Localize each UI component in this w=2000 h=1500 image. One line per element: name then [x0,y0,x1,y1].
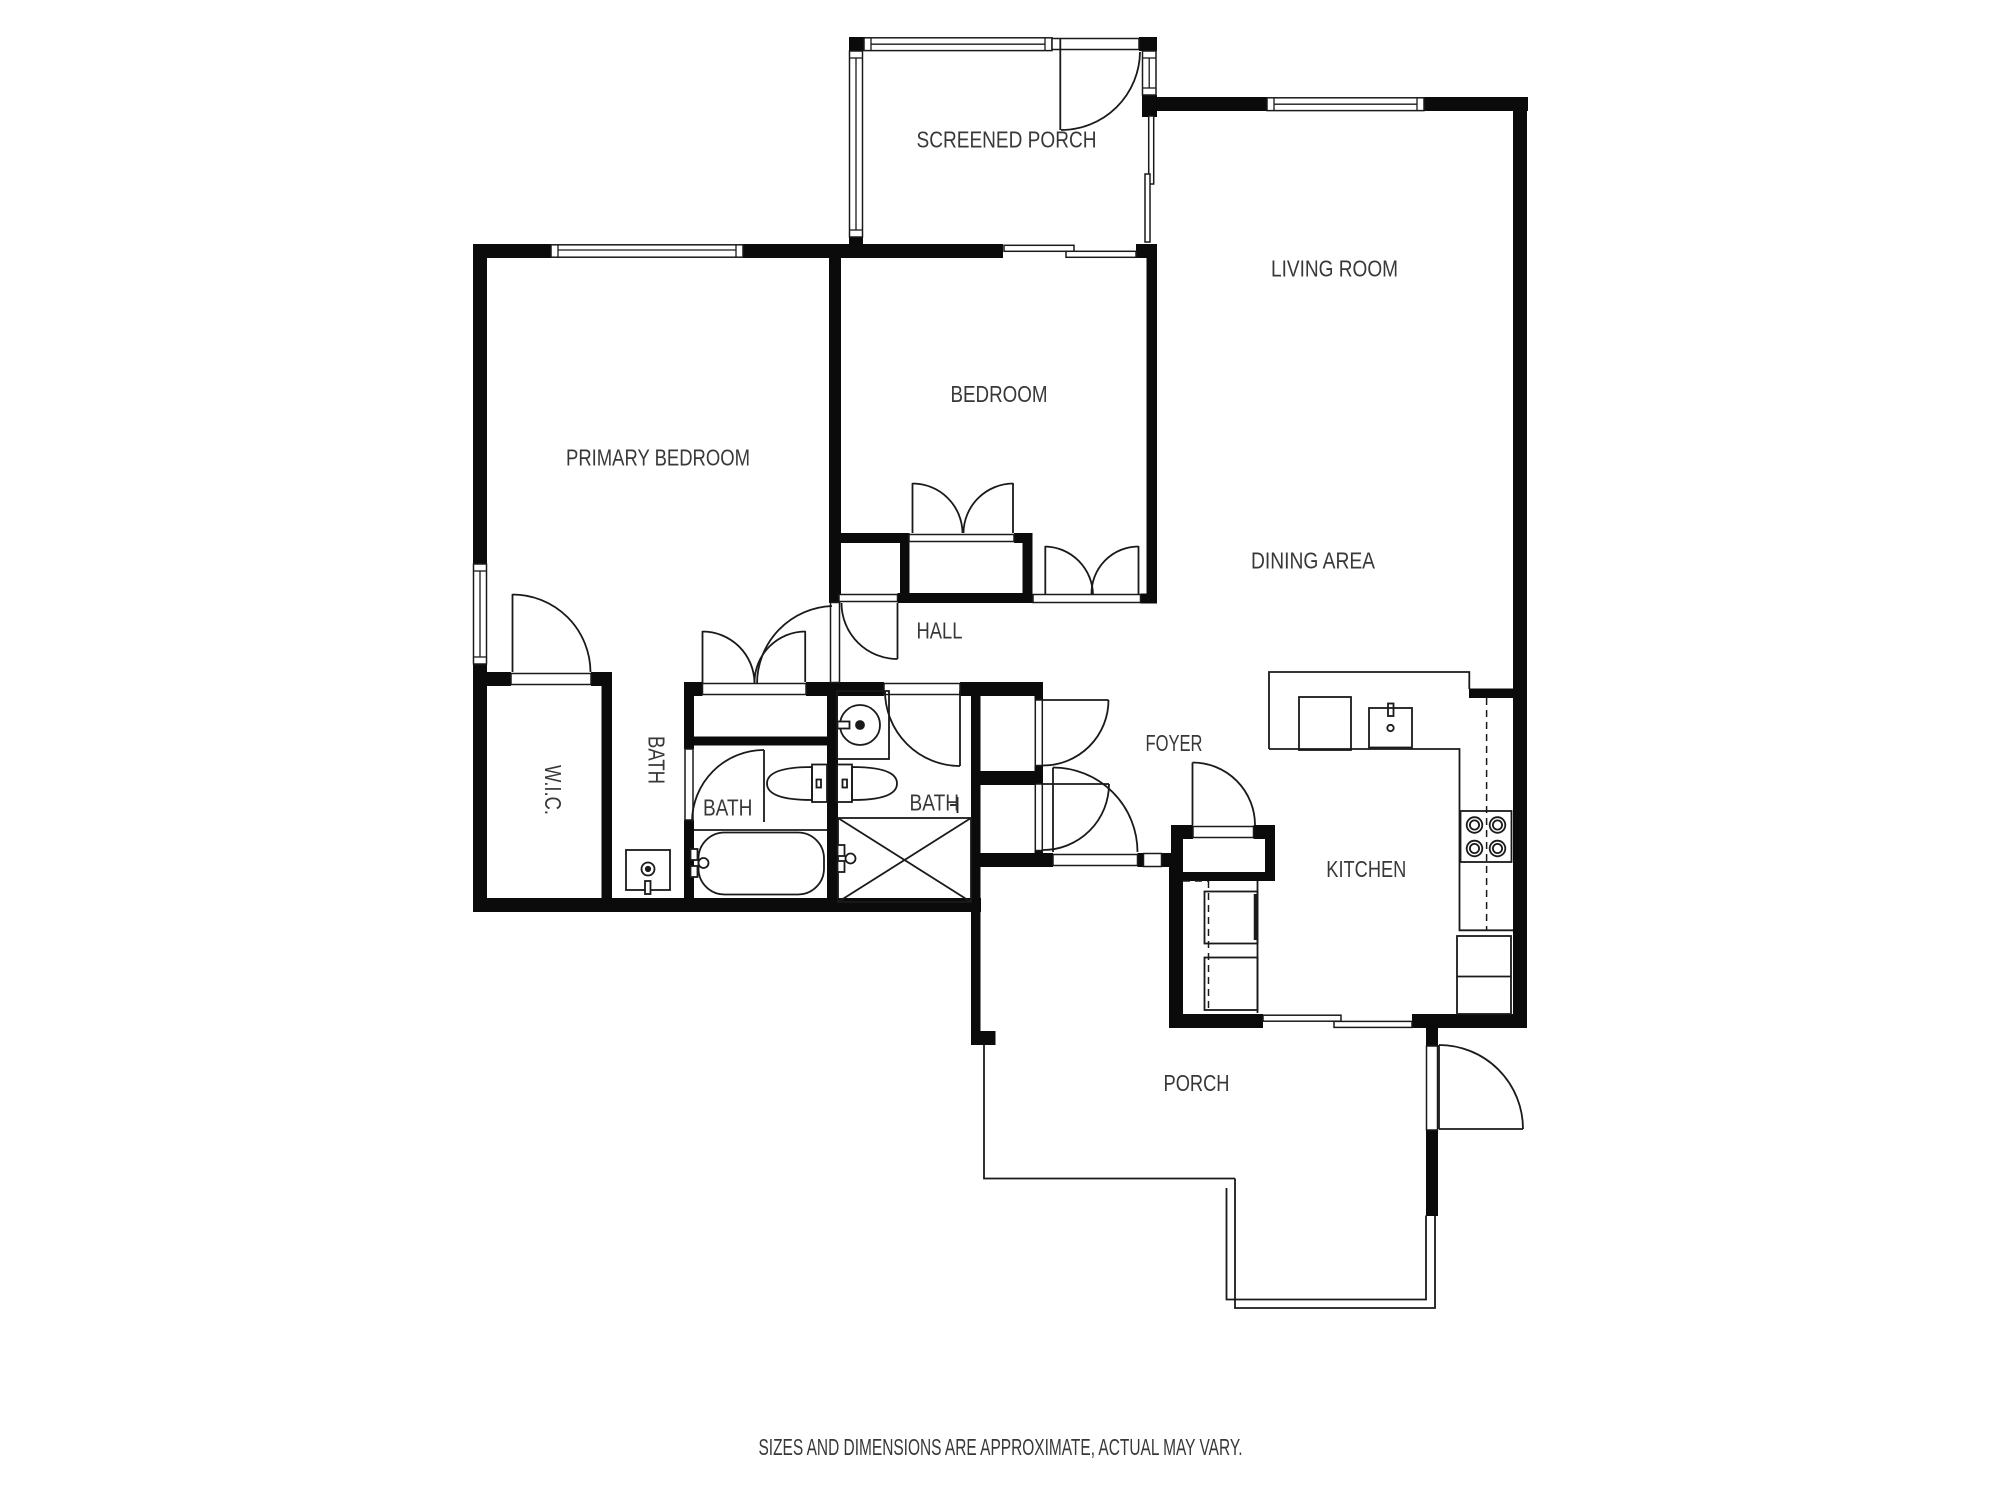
svg-text:BATH: BATH [703,795,753,821]
svg-text:BEDROOM: BEDROOM [951,381,1048,407]
svg-text:HALL: HALL [917,617,963,643]
svg-text:SIZES AND DIMENSIONS ARE APPRO: SIZES AND DIMENSIONS ARE APPROXIMATE, AC… [759,1434,1243,1460]
svg-text:SCREENED PORCH: SCREENED PORCH [917,127,1097,153]
svg-text:BATH: BATH [910,789,960,815]
svg-text:LIVING ROOM: LIVING ROOM [1271,256,1398,282]
svg-text:BATH: BATH [644,736,670,784]
svg-text:PRIMARY BEDROOM: PRIMARY BEDROOM [566,445,750,471]
svg-text:PORCH: PORCH [1164,1070,1230,1096]
svg-text:FOYER: FOYER [1146,730,1203,756]
svg-text:KITCHEN: KITCHEN [1326,856,1406,882]
svg-text:W.I.C.: W.I.C. [540,765,566,815]
svg-text:DINING AREA: DINING AREA [1251,547,1376,573]
